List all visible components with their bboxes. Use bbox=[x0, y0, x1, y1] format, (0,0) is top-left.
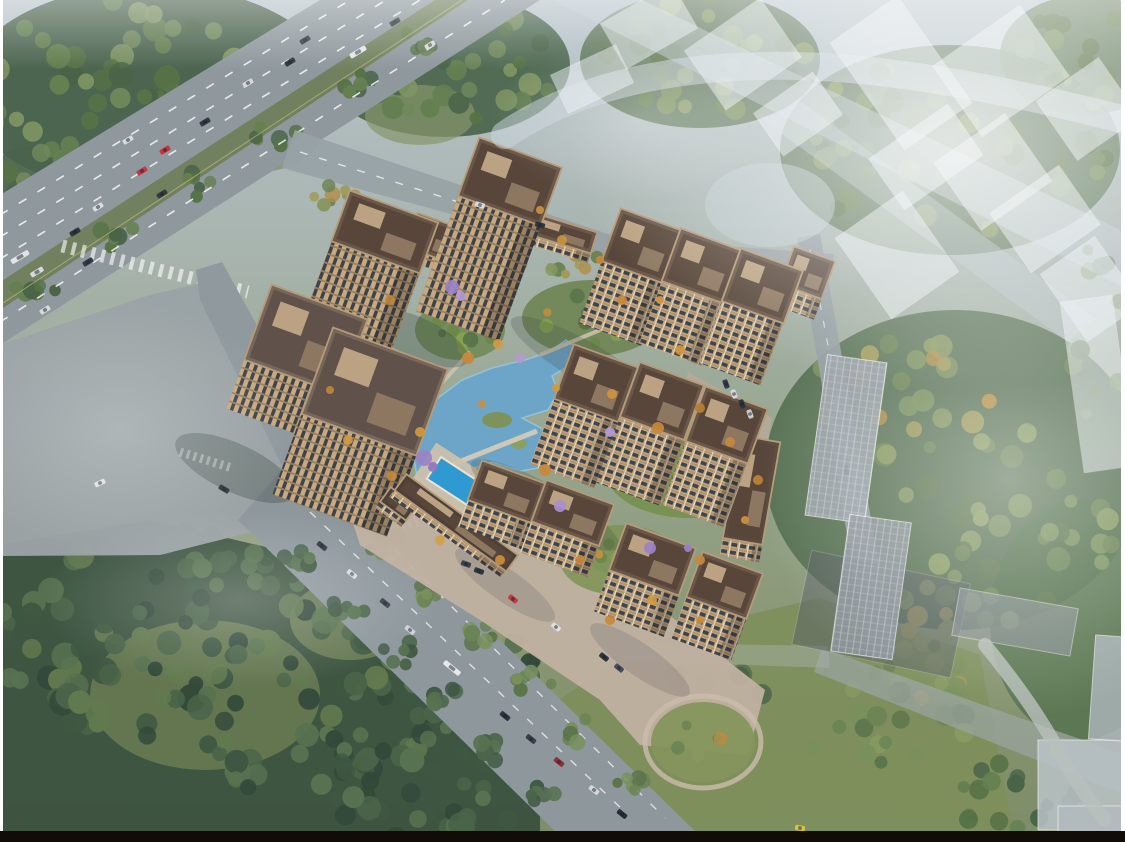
tree-accent bbox=[647, 595, 657, 605]
tree-accent bbox=[725, 437, 735, 447]
tree bbox=[361, 772, 379, 790]
tree bbox=[295, 723, 319, 747]
tree-accent bbox=[385, 295, 395, 305]
tree bbox=[691, 748, 704, 761]
tree bbox=[1007, 775, 1025, 793]
tree bbox=[445, 682, 460, 697]
frame-left-strip bbox=[0, 0, 3, 842]
tree-accent bbox=[741, 516, 749, 524]
letterbox-bar bbox=[0, 831, 1125, 842]
tree-accent bbox=[478, 400, 486, 408]
tree-accent bbox=[695, 403, 705, 413]
tree-accent bbox=[462, 352, 474, 364]
tree-accent bbox=[675, 345, 685, 355]
frame-right-strip bbox=[1121, 0, 1125, 842]
tree bbox=[78, 73, 94, 89]
tree bbox=[0, 668, 20, 688]
tree bbox=[333, 753, 351, 771]
scene-svg bbox=[0, 0, 1125, 842]
tree bbox=[570, 289, 585, 304]
tree bbox=[561, 270, 570, 279]
tree bbox=[137, 89, 152, 104]
tree bbox=[353, 727, 369, 743]
tree-accent bbox=[515, 353, 525, 363]
tree-accent bbox=[695, 555, 705, 565]
tree bbox=[524, 665, 538, 679]
tree bbox=[138, 726, 156, 744]
tree bbox=[342, 786, 364, 808]
tree bbox=[309, 192, 319, 202]
tree bbox=[420, 99, 439, 118]
tree bbox=[402, 103, 415, 116]
tree bbox=[858, 744, 876, 762]
tree-accent bbox=[552, 384, 560, 392]
tree bbox=[9, 112, 24, 127]
tree bbox=[240, 779, 256, 795]
tree bbox=[353, 77, 367, 91]
tree bbox=[511, 673, 523, 685]
tree bbox=[311, 774, 332, 795]
haze-topcenter bbox=[490, 40, 790, 200]
tree-accent bbox=[343, 435, 353, 445]
tree bbox=[477, 633, 493, 649]
tree bbox=[543, 308, 551, 316]
tree bbox=[215, 712, 234, 731]
tree bbox=[714, 732, 727, 745]
tree bbox=[110, 88, 131, 109]
tree bbox=[254, 121, 267, 134]
tree-accent bbox=[493, 339, 503, 349]
tree bbox=[227, 695, 244, 712]
tree bbox=[409, 810, 427, 828]
tree bbox=[225, 750, 249, 774]
tree bbox=[569, 734, 585, 750]
roundabout-lawn bbox=[651, 702, 755, 782]
tree bbox=[22, 639, 42, 659]
tree bbox=[49, 285, 61, 297]
tree bbox=[291, 745, 309, 763]
tree-accent bbox=[387, 471, 397, 481]
tree bbox=[990, 755, 1008, 773]
tree bbox=[579, 713, 591, 725]
tree bbox=[382, 96, 405, 119]
tree bbox=[458, 808, 477, 827]
tree bbox=[88, 94, 107, 113]
tree bbox=[875, 756, 888, 769]
tree-accent bbox=[456, 291, 466, 301]
tree bbox=[365, 666, 389, 690]
tree bbox=[461, 82, 477, 98]
tree bbox=[470, 112, 483, 125]
tree-accent bbox=[696, 616, 704, 624]
tree bbox=[320, 705, 342, 727]
tree bbox=[892, 711, 910, 729]
tree bbox=[400, 658, 412, 670]
tree-accent bbox=[554, 500, 566, 512]
tree-accent bbox=[326, 386, 334, 394]
tree bbox=[909, 748, 923, 762]
tree bbox=[32, 144, 50, 162]
tree bbox=[473, 735, 490, 752]
tree-accent bbox=[605, 615, 615, 625]
tree bbox=[298, 688, 320, 710]
tree bbox=[832, 720, 846, 734]
tree-accent bbox=[495, 555, 505, 565]
tree bbox=[425, 762, 442, 779]
tree bbox=[621, 773, 633, 785]
tree bbox=[400, 748, 425, 773]
aerial-render-image bbox=[0, 0, 1125, 842]
tree bbox=[187, 694, 213, 720]
tree bbox=[682, 721, 692, 731]
tree bbox=[629, 784, 640, 795]
tree bbox=[420, 731, 437, 748]
tree bbox=[545, 264, 557, 276]
tree bbox=[427, 695, 443, 711]
tree-accent bbox=[617, 295, 627, 305]
tree bbox=[81, 112, 99, 130]
tree bbox=[401, 783, 421, 803]
tree bbox=[807, 741, 822, 756]
tree bbox=[547, 786, 562, 801]
tree bbox=[631, 770, 647, 786]
tree bbox=[867, 706, 887, 726]
tree-accent bbox=[684, 544, 692, 552]
tree bbox=[959, 810, 978, 829]
tree-accent bbox=[557, 235, 567, 245]
tree bbox=[526, 790, 537, 801]
tree bbox=[10, 281, 23, 294]
tree bbox=[546, 679, 557, 690]
tree bbox=[879, 736, 892, 749]
tree-accent bbox=[415, 427, 425, 437]
tree bbox=[457, 777, 471, 791]
tree bbox=[498, 810, 517, 829]
tree bbox=[68, 690, 92, 714]
pond-island1 bbox=[482, 412, 512, 428]
tree-accent bbox=[428, 462, 438, 472]
tree bbox=[958, 781, 970, 793]
tree bbox=[990, 812, 1008, 830]
tree bbox=[475, 791, 491, 807]
tree bbox=[612, 778, 622, 788]
tree bbox=[204, 176, 216, 188]
tree bbox=[375, 742, 392, 759]
tree bbox=[190, 190, 203, 203]
tree bbox=[217, 733, 233, 749]
tree-accent bbox=[644, 542, 656, 554]
tree bbox=[322, 179, 335, 192]
tree-accent bbox=[596, 256, 604, 264]
tree bbox=[671, 741, 685, 755]
tree-accent bbox=[575, 555, 585, 565]
tree bbox=[126, 222, 139, 235]
tree bbox=[21, 603, 43, 625]
tree-accent bbox=[605, 427, 615, 437]
tree-accent bbox=[445, 280, 459, 294]
tree bbox=[155, 689, 171, 705]
tree bbox=[23, 121, 43, 141]
tree-accent bbox=[539, 464, 551, 476]
tree bbox=[579, 262, 591, 274]
tree bbox=[92, 222, 109, 239]
tree bbox=[50, 75, 70, 95]
tree bbox=[455, 746, 471, 762]
tree-accent bbox=[652, 422, 664, 434]
tree-accent bbox=[607, 389, 617, 399]
tree-accent bbox=[435, 535, 445, 545]
tree bbox=[355, 750, 377, 772]
tree bbox=[410, 707, 427, 724]
tree bbox=[109, 228, 123, 242]
tree bbox=[982, 772, 1001, 791]
tree-accent bbox=[536, 206, 544, 214]
